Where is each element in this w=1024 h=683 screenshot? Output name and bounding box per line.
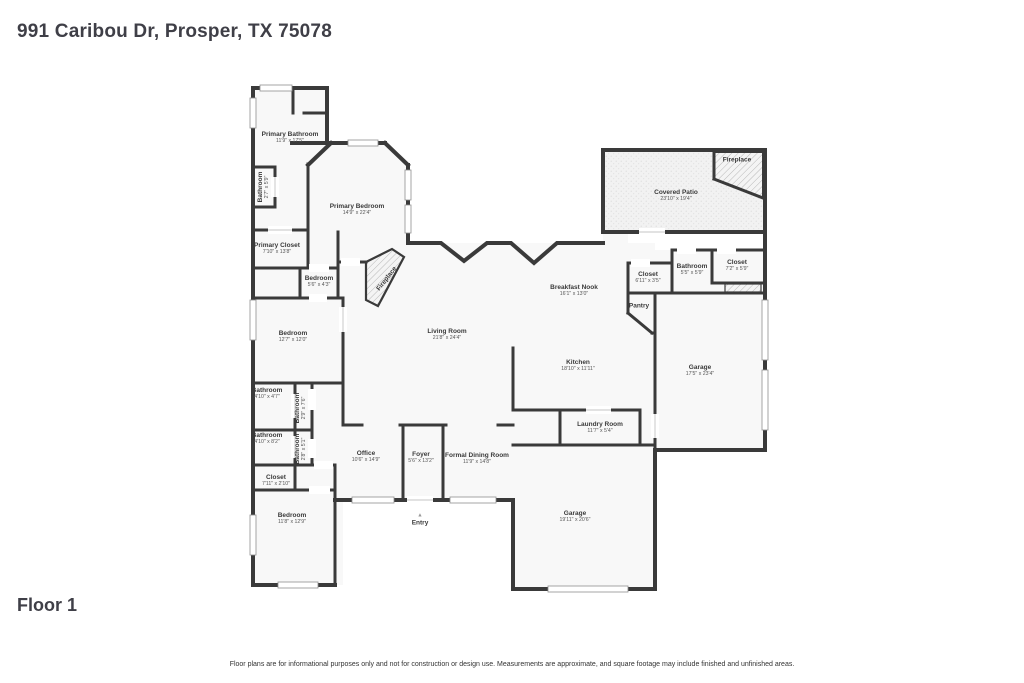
floor-plan-drawing: [0, 0, 1024, 683]
room-fills: [253, 88, 765, 589]
floor-plan: Primary Bathroom11'9" x 17'5"Bathroom2'7…: [0, 0, 1024, 683]
floor-label: Floor 1: [17, 595, 77, 616]
disclaimer-text: Floor plans are for informational purpos…: [0, 661, 1024, 668]
floor-plan-page: 991 Caribou Dr, Prosper, TX 75078: [0, 0, 1024, 683]
built-in-hatch-strip: [725, 284, 761, 292]
